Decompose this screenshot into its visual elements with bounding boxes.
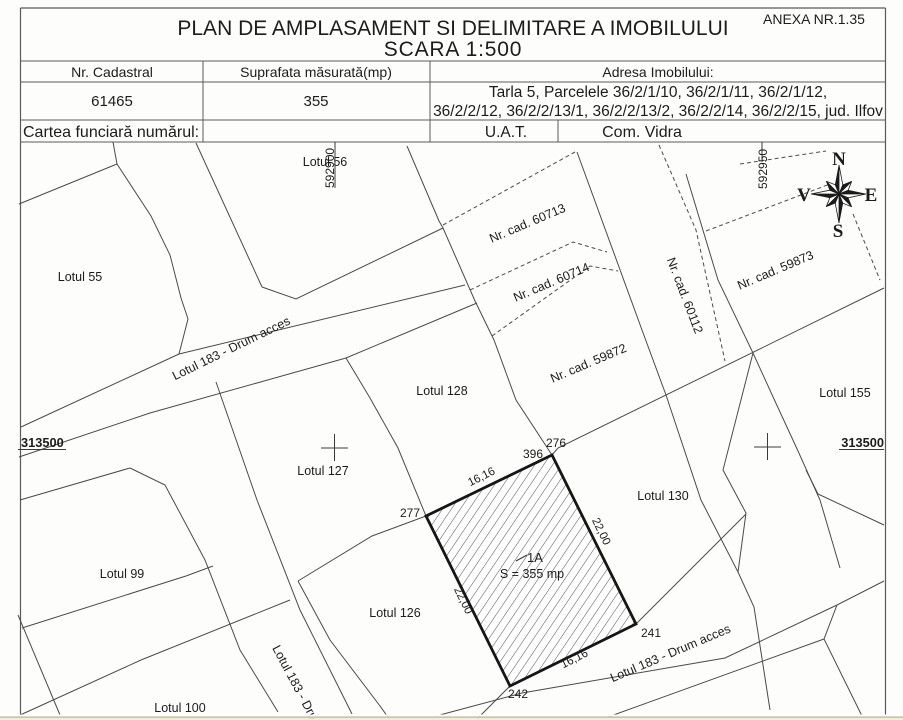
svg-text:396: 396: [523, 447, 543, 461]
svg-text:Lotul 126: Lotul 126: [369, 606, 420, 620]
svg-text:Lotul 127: Lotul 127: [297, 464, 348, 478]
svg-text:277: 277: [400, 506, 420, 520]
svg-text:SCARA 1:500: SCARA 1:500: [384, 38, 522, 61]
svg-text:592950: 592950: [756, 149, 770, 189]
svg-text:ANEXA NR.1.35: ANEXA NR.1.35: [763, 11, 865, 27]
svg-text:E: E: [865, 185, 878, 206]
svg-text:313500: 313500: [21, 435, 64, 450]
svg-text:313500: 313500: [841, 435, 884, 450]
svg-text:S: S: [833, 221, 844, 242]
svg-text:242: 242: [508, 687, 528, 701]
svg-text:276: 276: [546, 436, 566, 450]
svg-text:1A: 1A: [527, 550, 543, 565]
svg-text:Com. Vidra: Com. Vidra: [602, 124, 682, 141]
svg-text:Adresa Imobilului:: Adresa Imobilului:: [602, 64, 713, 80]
svg-text:Lotul 99: Lotul 99: [100, 567, 145, 581]
svg-text:36/2/2/12, 36/2/2/13/1, 36/2/2: 36/2/2/12, 36/2/2/13/1, 36/2/2/13/2, 36/…: [433, 103, 883, 120]
svg-text:N: N: [832, 149, 846, 170]
svg-text:Tarla 5, Parcelele 36/2/1/10,: Tarla 5, Parcelele 36/2/1/10, 36/2/1/11,…: [489, 84, 827, 101]
svg-text:61465: 61465: [91, 93, 133, 110]
svg-text:V: V: [797, 185, 811, 206]
svg-text:592900: 592900: [323, 148, 337, 188]
svg-text:355: 355: [303, 93, 328, 110]
svg-text:Lotul 155: Lotul 155: [819, 386, 870, 400]
svg-text:PLAN DE AMPLASAMENT SI DELIMIT: PLAN DE AMPLASAMENT SI DELIMITARE A IMOB…: [177, 17, 728, 40]
svg-text:Cartea funciară numărul:: Cartea funciară numărul:: [23, 124, 199, 141]
svg-text:241: 241: [641, 626, 661, 640]
svg-text:S = 355 mp: S = 355 mp: [500, 567, 564, 581]
svg-text:U.A.T.: U.A.T.: [485, 124, 527, 141]
svg-text:Lotul 55: Lotul 55: [58, 270, 103, 284]
svg-text:Lotul 130: Lotul 130: [637, 489, 688, 503]
svg-text:Lotul 100: Lotul 100: [154, 701, 205, 715]
svg-text:Lotul 128: Lotul 128: [416, 384, 467, 398]
svg-text:Suprafata măsurată(mp): Suprafata măsurată(mp): [240, 64, 392, 80]
svg-text:Nr. Cadastral: Nr. Cadastral: [71, 64, 153, 80]
